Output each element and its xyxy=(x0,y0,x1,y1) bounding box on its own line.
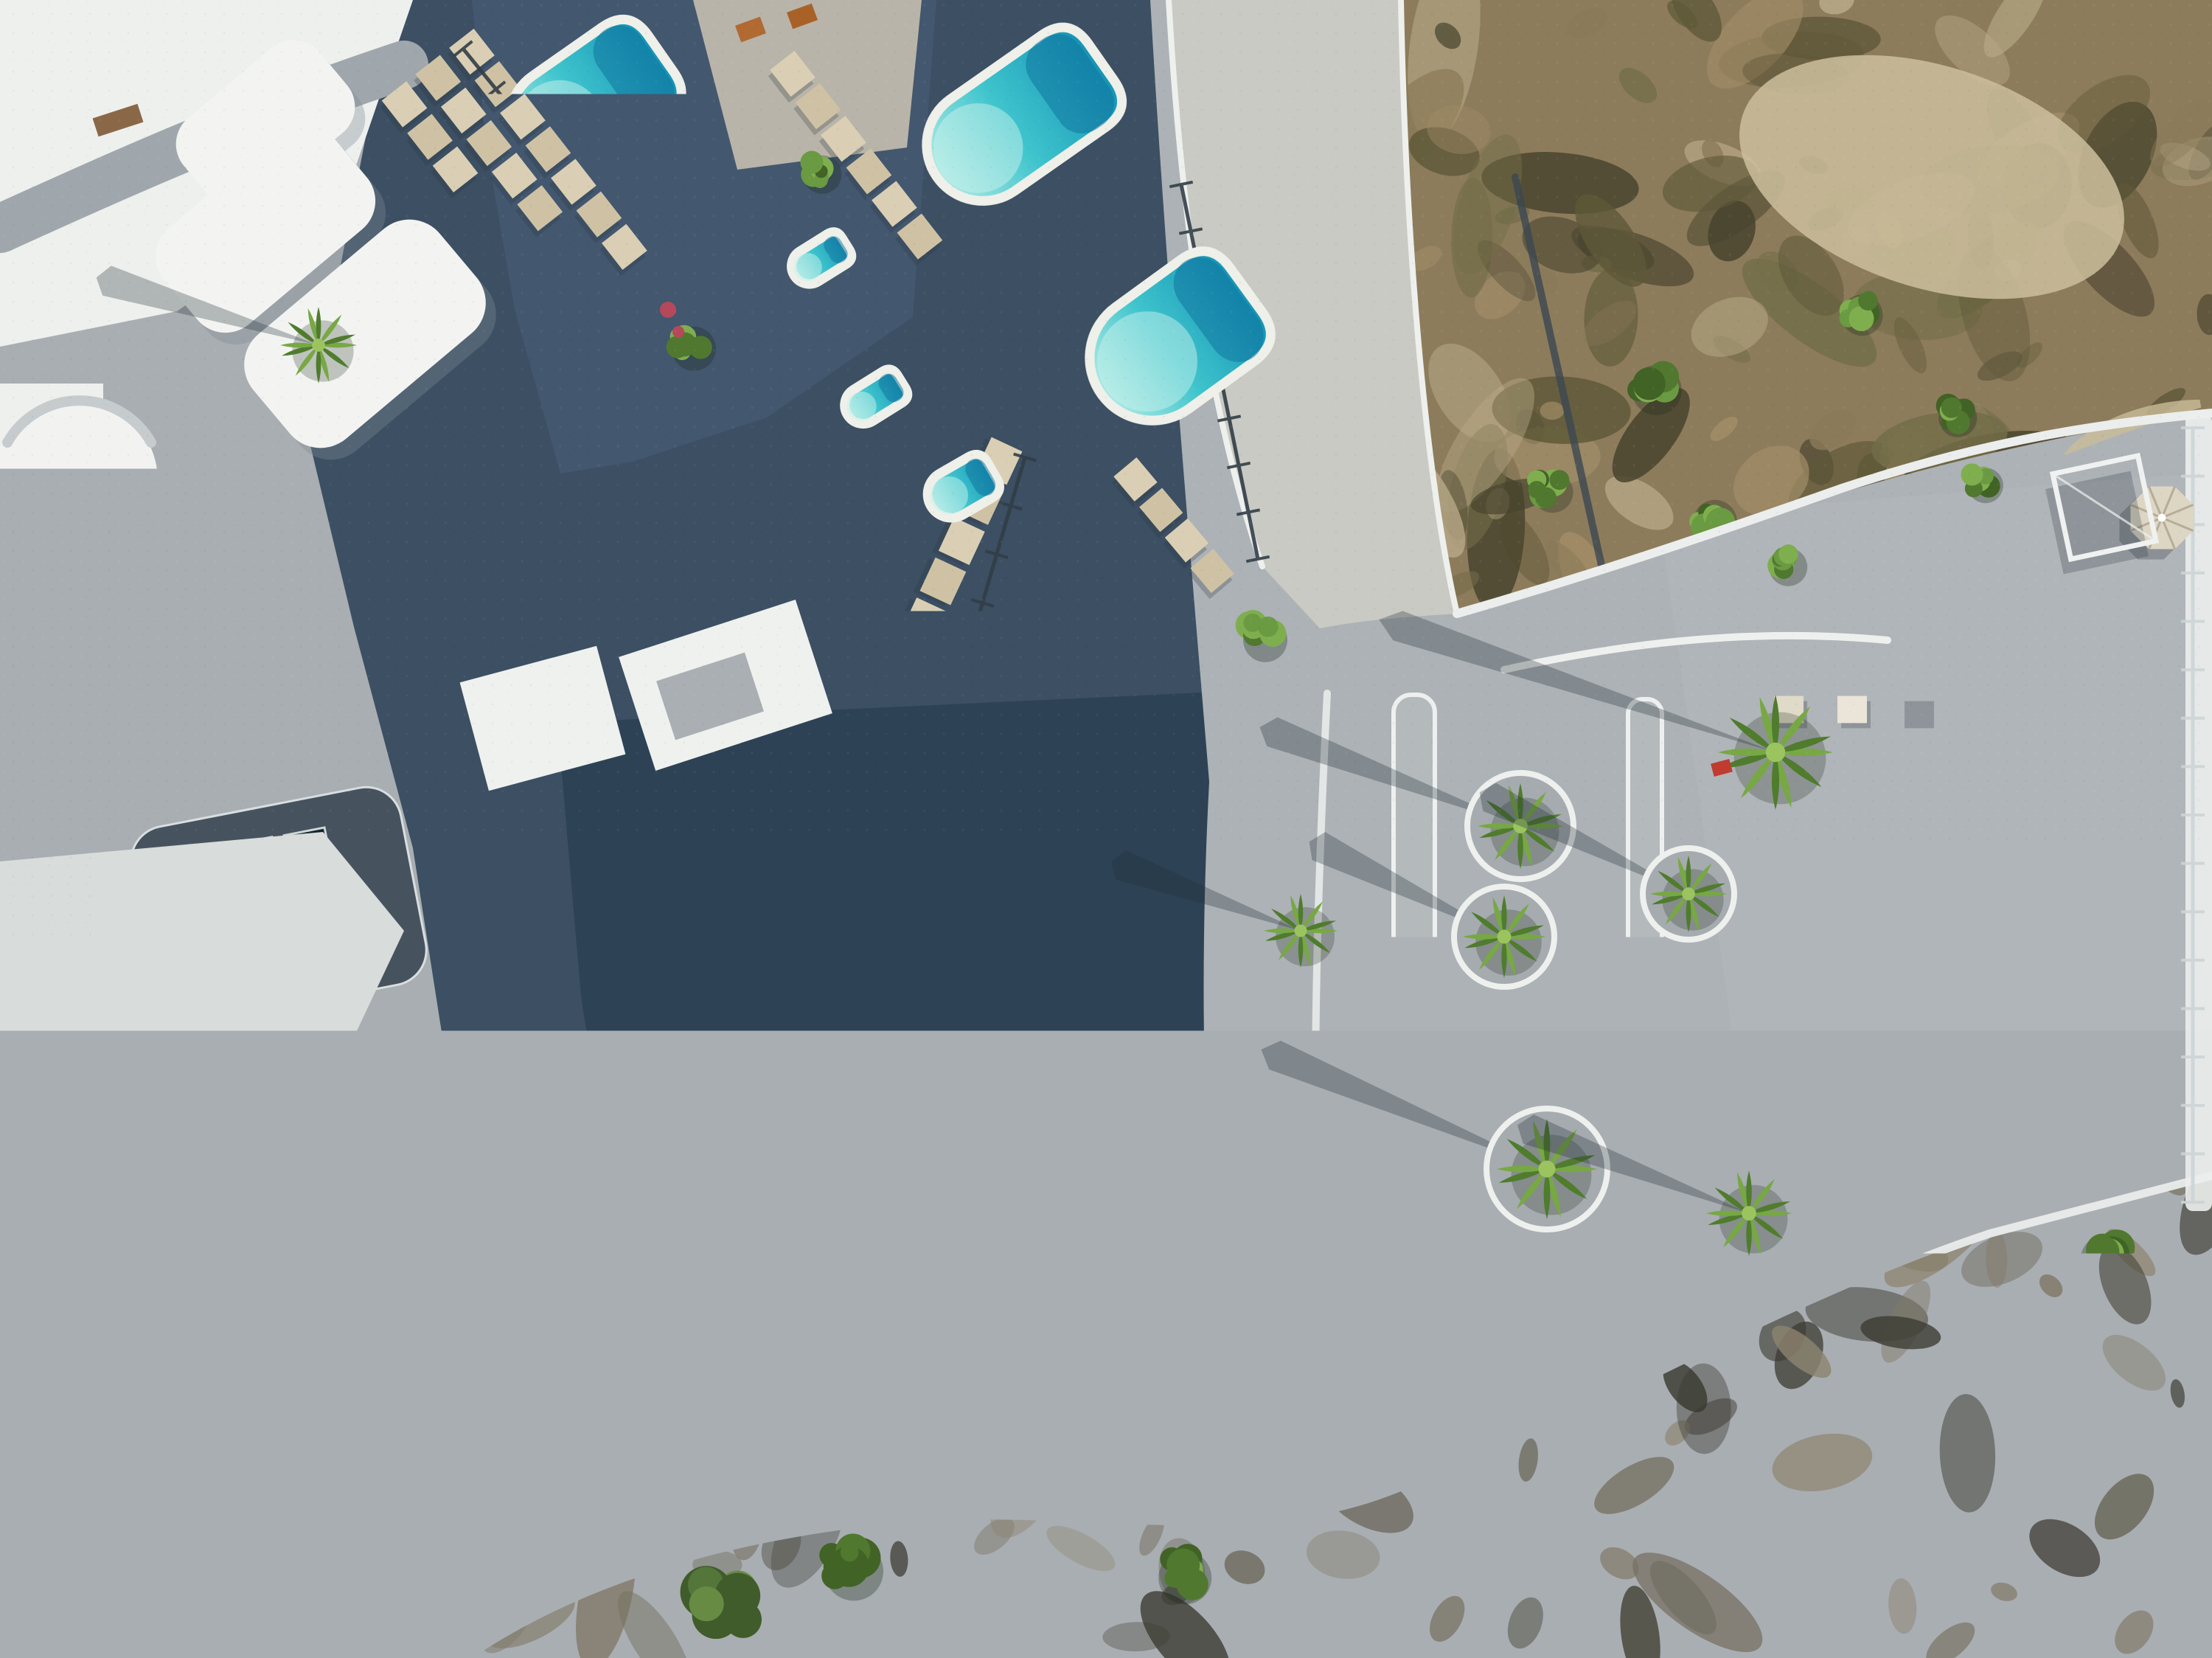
aerial-photo-canvas xyxy=(0,0,2212,1658)
photo-grain xyxy=(0,0,2212,1658)
aerial-resort-photo xyxy=(0,0,2212,1658)
